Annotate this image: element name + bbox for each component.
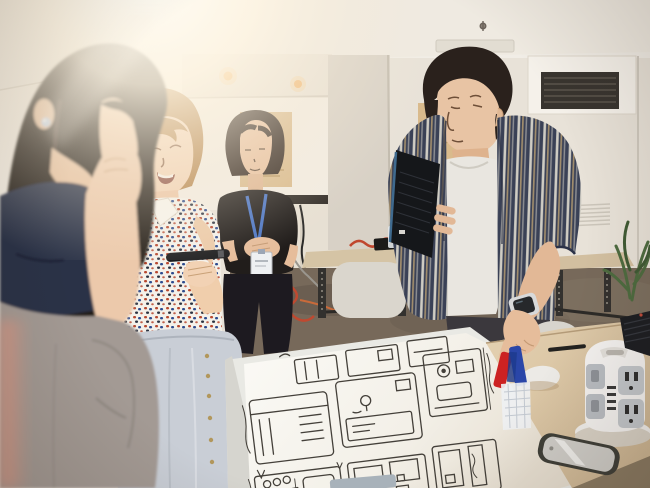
vignette xyxy=(0,0,650,488)
photo-canvas xyxy=(0,0,650,488)
office-room-photo xyxy=(0,0,650,488)
